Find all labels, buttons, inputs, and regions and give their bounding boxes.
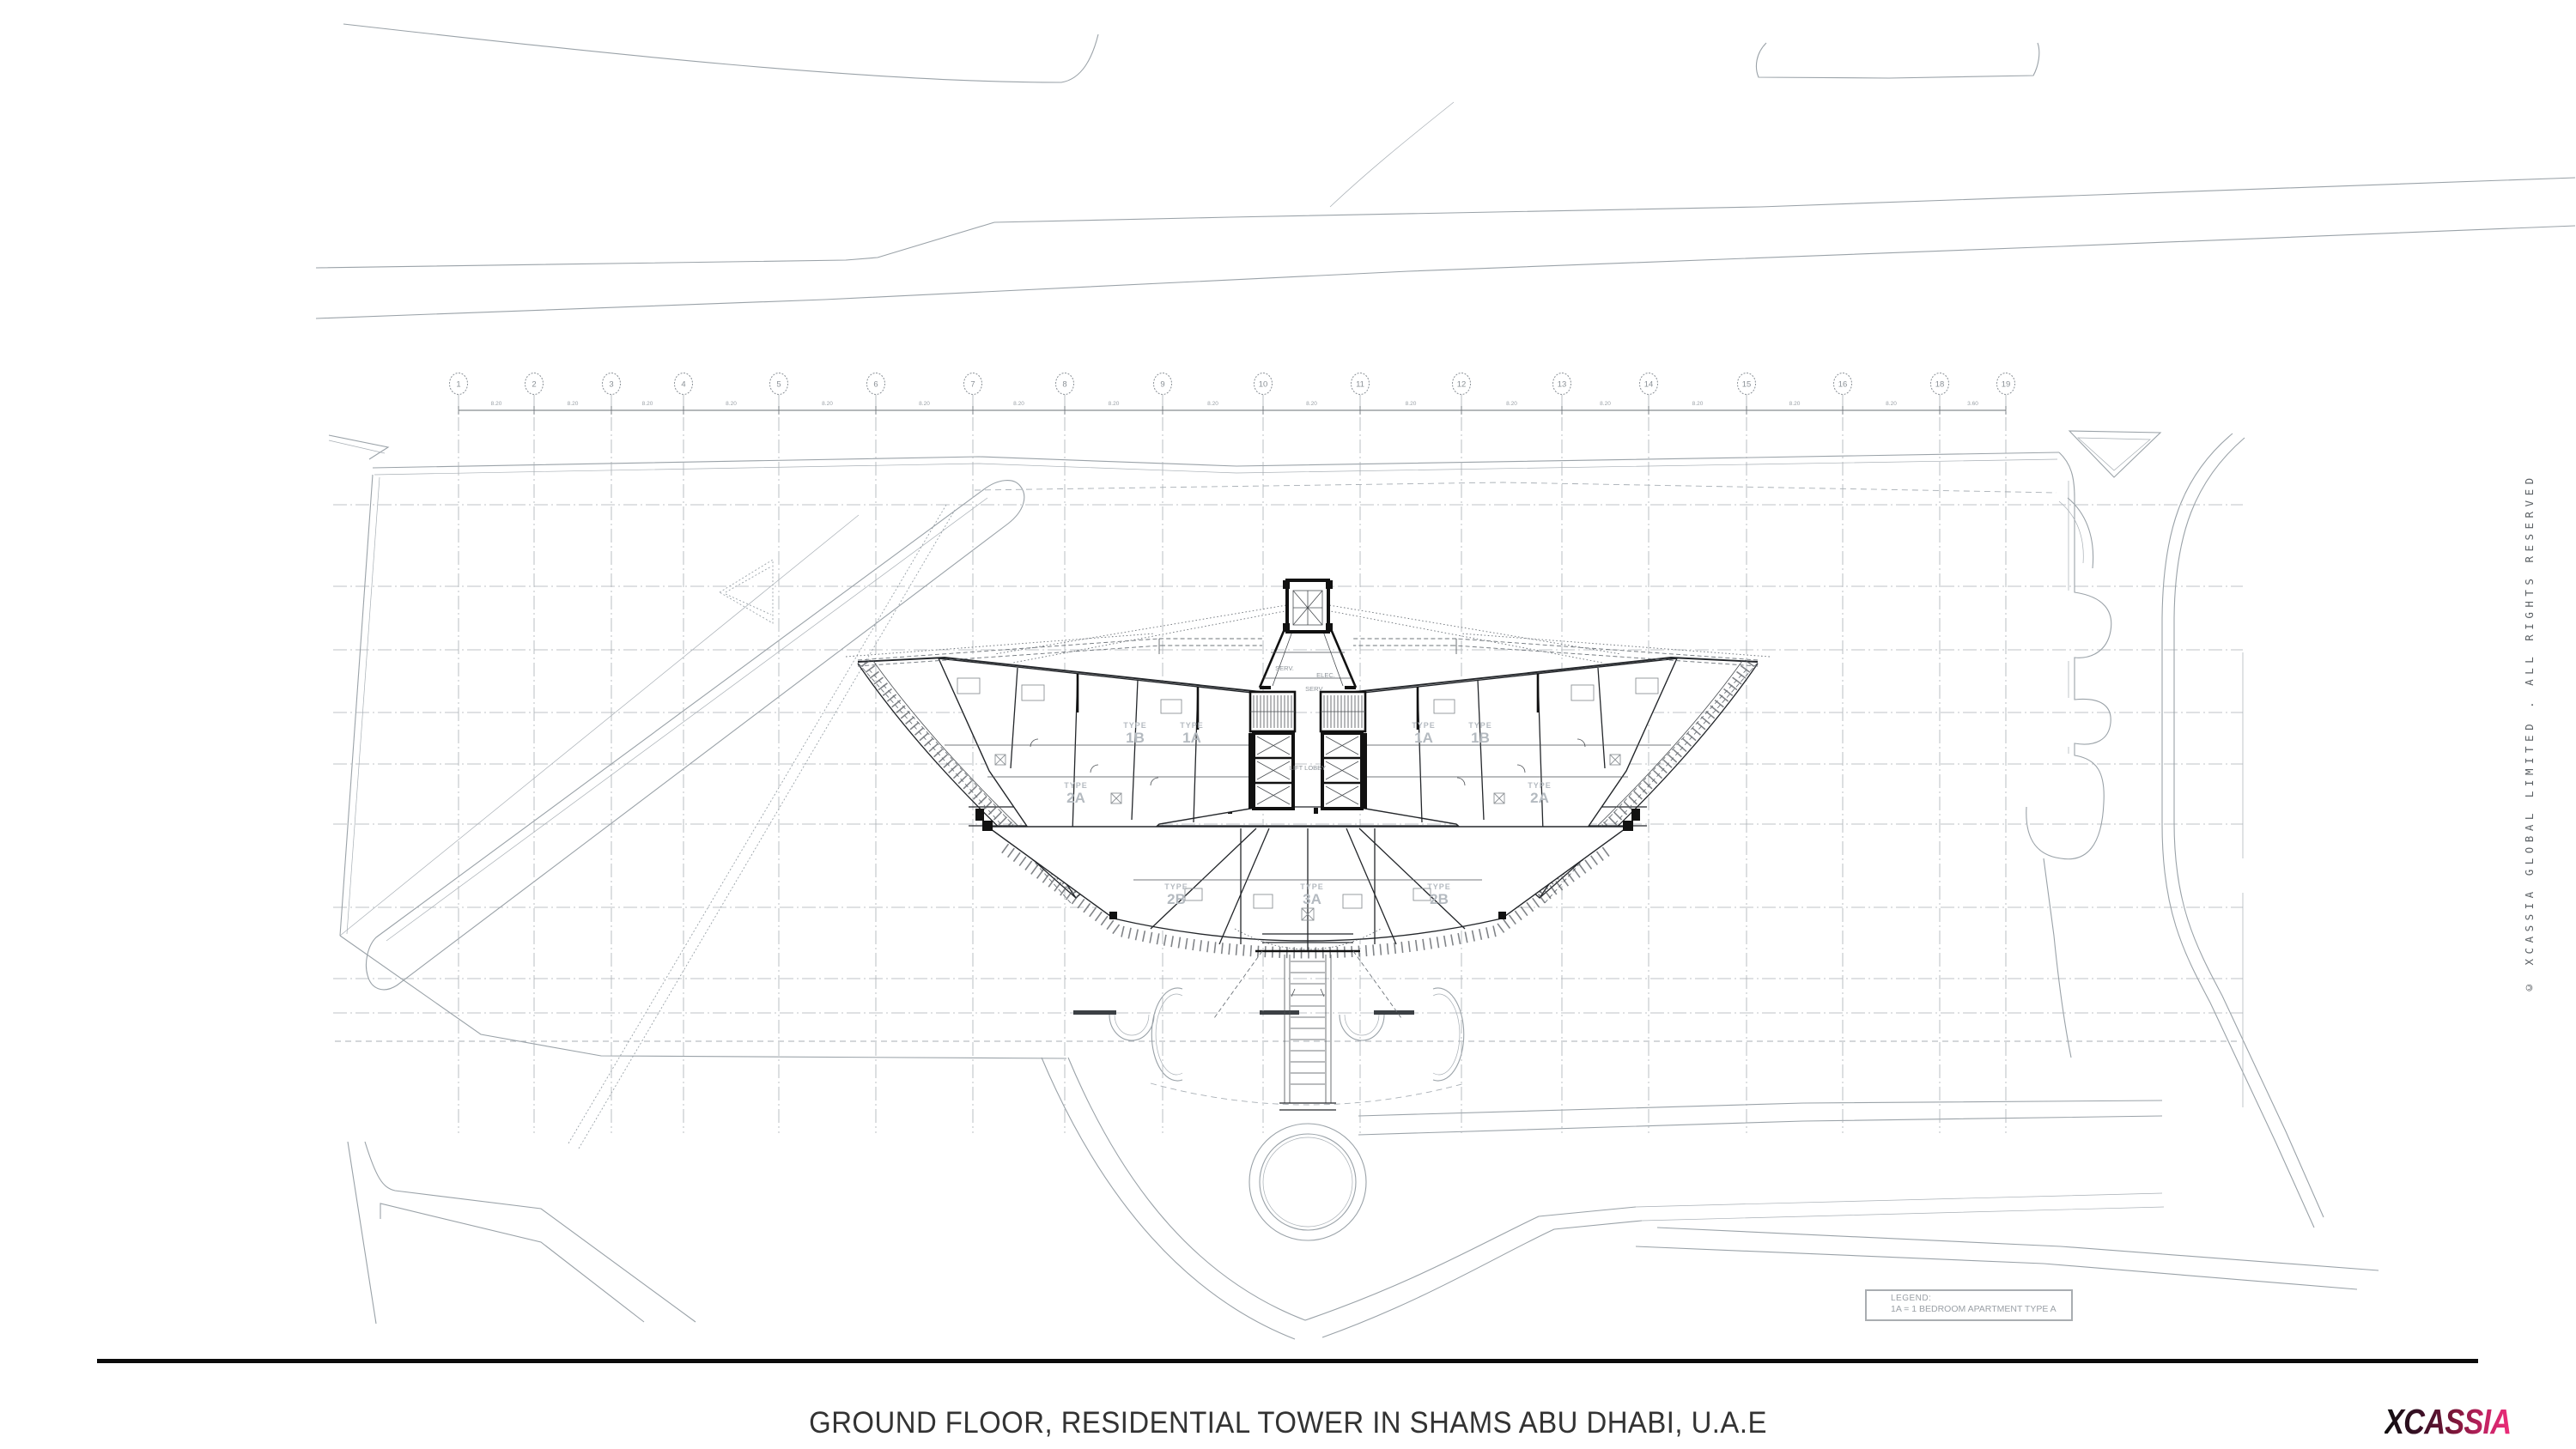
- grid-bubble-label: 10: [1259, 380, 1268, 390]
- dimension-label: 8.20: [568, 401, 579, 407]
- unit-type-label: TYPE1A: [1412, 721, 1436, 746]
- dimension-label: 8.20: [491, 401, 502, 407]
- tower-plan: [846, 580, 1770, 1110]
- grid-bubble-label: 7: [970, 380, 975, 390]
- dimension-label: 8.20: [1789, 401, 1801, 407]
- title-rule: [97, 1359, 2478, 1363]
- core-room-label: LIFT LOBBY: [1290, 764, 1326, 772]
- xcassia-logo: XCASSIA: [2385, 1402, 2511, 1442]
- grid-bubble-label: 3: [609, 380, 613, 390]
- grid-bubble-label: 12: [1457, 380, 1467, 390]
- sheet-title: GROUND FLOOR, RESIDENTIAL TOWER IN SHAMS…: [77, 1406, 2499, 1440]
- dimension-label: 8.20: [1207, 401, 1218, 407]
- unit-type-label: TYPE3A: [1300, 882, 1324, 907]
- drawing-sheet: 18.2028.2038.2048.2058.2068.2078.2088.20…: [0, 0, 2576, 1449]
- grid-bubble-label: 19: [2002, 380, 2011, 390]
- unit-type-label: TYPE1B: [1123, 721, 1147, 746]
- grid-bubble-label: 14: [1644, 380, 1654, 390]
- grid-bubble-label: 16: [1838, 380, 1848, 390]
- grid-bubble-label: 15: [1742, 380, 1752, 390]
- unit-type-label: TYPE2B: [1427, 882, 1451, 907]
- dimension-label: 8.20: [1506, 401, 1517, 407]
- unit-type-label: TYPE1B: [1468, 721, 1492, 746]
- core-room-label: SERV.: [1275, 664, 1294, 672]
- dimension-label: 8.20: [1600, 401, 1611, 407]
- legend-entry: 1A = 1 BEDROOM APARTMENT TYPE A: [1891, 1304, 2071, 1314]
- site-plan-canvas: 18.2028.2038.2048.2058.2068.2078.2088.20…: [0, 0, 2576, 1449]
- unit-type-label: TYPE2A: [1528, 781, 1552, 806]
- unit-type-label: TYPE2A: [1064, 781, 1088, 806]
- dimension-label: 8.20: [1886, 401, 1897, 407]
- unit-type-label: TYPE1A: [1180, 721, 1204, 746]
- core-room-label: ELEC.: [1316, 671, 1335, 679]
- dimension-label: 8.20: [1306, 401, 1317, 407]
- grid-bubble-label: 6: [873, 380, 878, 390]
- dimension-label: 8.20: [1406, 401, 1417, 407]
- dimension-label: 8.20: [726, 401, 737, 407]
- top-site-curves: [316, 24, 2575, 318]
- dimension-label: 8.20: [919, 401, 930, 407]
- dimension-label: 8.20: [1013, 401, 1024, 407]
- dimension-label: 8.20: [1109, 401, 1120, 407]
- core-room-label: SERV.: [1305, 685, 1324, 693]
- legend-heading: LEGEND:: [1891, 1294, 2071, 1303]
- grid-bubble-label: 5: [776, 380, 781, 390]
- grid-bubble-label: 1: [456, 380, 460, 390]
- legend-box: LEGEND: 1A = 1 BEDROOM APARTMENT TYPE A: [1865, 1289, 2073, 1321]
- grid-bubble-label: 13: [1558, 380, 1567, 390]
- grid-bubble-label: 9: [1160, 380, 1164, 390]
- grid-bubble-label: 8: [1062, 380, 1066, 390]
- dimension-label: 3.60: [1967, 401, 1978, 407]
- dimension-label: 8.20: [822, 401, 833, 407]
- grid-bubble-label: 2: [532, 380, 536, 390]
- grid-bubble-label: 4: [681, 380, 685, 390]
- unit-type-label: TYPE2B: [1164, 882, 1188, 907]
- grid-bubble-label: 11: [1356, 380, 1364, 390]
- dimension-label: 8.20: [1692, 401, 1704, 407]
- copyright-text: © XCASSIA GLOBAL LIMITED . ALL RIGHTS RE…: [2523, 479, 2536, 994]
- dimension-label: 8.20: [642, 401, 653, 407]
- grid-bubble-label: 18: [1935, 380, 1945, 390]
